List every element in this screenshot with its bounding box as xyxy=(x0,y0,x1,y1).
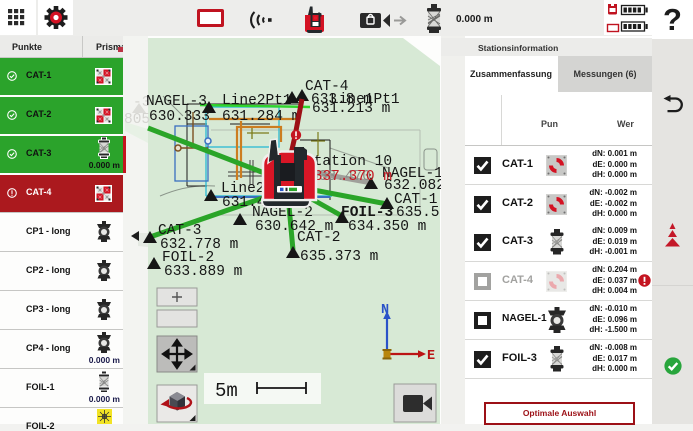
svg-text:3837.370 m: 3837.370 m xyxy=(305,169,392,185)
svg-text:634.350 m: 634.350 m xyxy=(348,219,426,235)
svg-text:631.213 m: 631.213 m xyxy=(312,101,390,117)
svg-text:633.889 m: 633.889 m xyxy=(164,264,242,280)
svg-text:Line2Pt1: Line2Pt1 xyxy=(222,93,292,109)
svg-text:805: 805 xyxy=(124,112,150,128)
svg-text:CAT-2: CAT-2 xyxy=(297,230,341,246)
svg-text:NAGEL-3: NAGEL-3 xyxy=(146,94,207,110)
svg-text:Station 10: Station 10 xyxy=(305,154,392,170)
svg-text:630.333: 630.333 xyxy=(149,109,210,125)
svg-text:631.284 m: 631.284 m xyxy=(222,109,300,125)
svg-text:5m: 5m xyxy=(215,380,238,402)
svg-text:E: E xyxy=(427,349,435,364)
svg-text:635.373 m: 635.373 m xyxy=(300,249,378,265)
